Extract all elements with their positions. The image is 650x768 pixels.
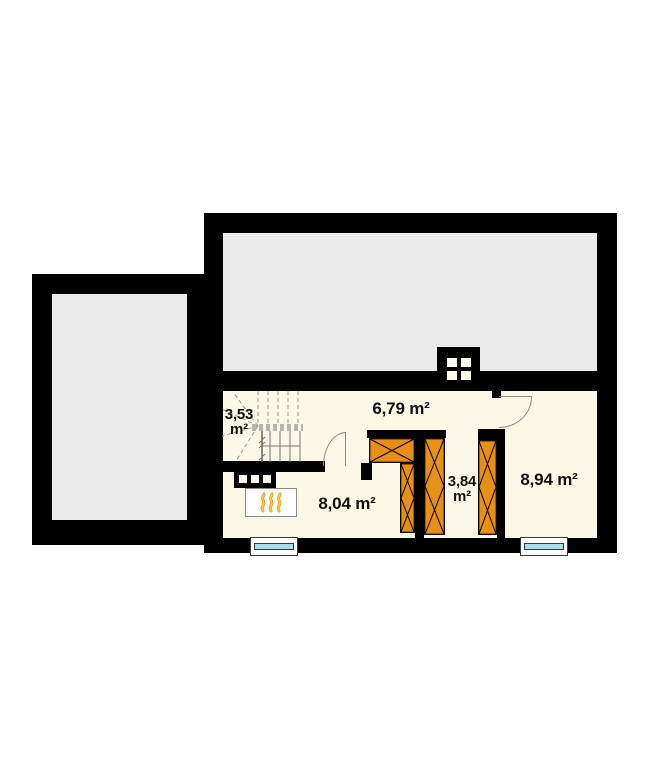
wall-middle [204, 371, 597, 391]
area-unit: m² [443, 489, 481, 504]
wall-top [204, 213, 617, 233]
wall-door-stub-left [361, 463, 372, 480]
wall-garage-left [32, 274, 52, 545]
area-value: 3,84 [443, 474, 481, 489]
wall-right [597, 213, 617, 553]
room-label-wardrobe-passage: 3,84 m² [443, 474, 481, 504]
door-leaf-icon [345, 432, 346, 466]
wardrobe-icon [424, 438, 445, 535]
area-value: 3,53 [220, 407, 258, 422]
window-icon [250, 537, 298, 556]
small-chimney-icon [234, 472, 276, 488]
wardrobe-icon [369, 438, 415, 463]
flame-icon [258, 492, 284, 513]
area-unit: m² [220, 422, 258, 437]
room-label-fireplace-room: 8,04 m² [287, 495, 407, 512]
door-leaf-icon [499, 396, 532, 397]
garage-room-floor [52, 294, 187, 520]
wall-garage-bottom [32, 520, 204, 545]
wall-garage-right [187, 274, 204, 545]
wall-garage-top [32, 274, 204, 294]
upper-room-floor [223, 233, 597, 371]
floor-plan: 3,53 m² 6,79 m² 8,04 m² 3,84 m² 8,94 m² [0, 0, 650, 768]
room-label-staircase: 3,53 m² [220, 407, 258, 437]
wall-hallway-south [367, 430, 446, 438]
room-label-hallway: 6,79 m² [341, 400, 461, 417]
chimney-icon [437, 347, 480, 391]
window-icon [520, 537, 568, 556]
room-label-side-room: 8,94 m² [489, 471, 609, 488]
wall-passage-left [415, 438, 424, 538]
